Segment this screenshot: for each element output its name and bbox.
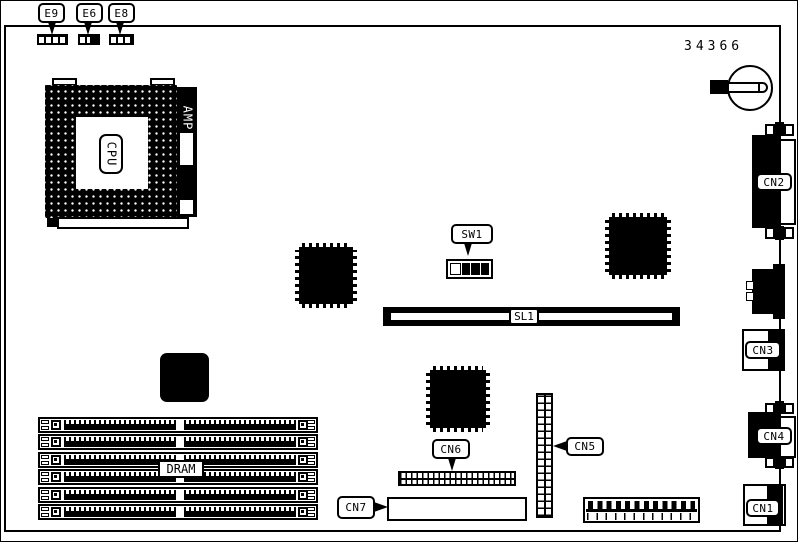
slot-key — [41, 478, 49, 482]
slot-key — [307, 496, 315, 500]
jumper-e6-arrow-icon — [84, 22, 92, 35]
battery-lead-icon — [727, 82, 768, 93]
pin — [125, 37, 130, 43]
slot-key — [307, 507, 315, 511]
jumper-e8-label: E8 — [108, 3, 135, 23]
slot-key — [307, 443, 315, 447]
header-pins — [588, 501, 695, 509]
sw1-text: SW1 — [461, 229, 482, 240]
dram-text: DRAM — [167, 463, 196, 475]
motherboard-diagram: 34366 E9 E6 E8 CPU AMP — [0, 0, 798, 542]
jumper-e8-pins — [109, 34, 134, 45]
amp-label-text: AMP — [181, 106, 193, 131]
cn3-label: CN3 — [745, 341, 781, 359]
jumper-e6-label: E6 — [76, 3, 103, 23]
chip-body — [430, 370, 486, 428]
battery-lead-base — [710, 80, 728, 94]
cn6-label: CN6 — [432, 439, 470, 459]
qfp-chip — [426, 366, 490, 432]
latch-icon — [51, 507, 61, 517]
qfp-chip — [605, 213, 671, 279]
cn5-arrow-icon — [553, 441, 567, 451]
amp-bracket-slot — [180, 200, 193, 214]
cn2-mount-post — [775, 122, 784, 136]
pin — [87, 37, 90, 43]
cn6-header — [398, 471, 516, 486]
cn1-text: CN1 — [752, 503, 773, 514]
slot-key — [41, 426, 49, 430]
header-cells — [587, 513, 696, 520]
din-connector-body — [752, 269, 781, 314]
pin — [111, 37, 116, 43]
pin-row — [64, 420, 176, 430]
pin-row — [184, 507, 296, 517]
cn2-mount-tab — [784, 227, 794, 239]
cn4-label: CN4 — [756, 427, 792, 445]
pin-row — [184, 437, 296, 447]
jumper-e9-pins — [37, 34, 68, 45]
simm-slot — [38, 417, 318, 433]
bottom-pin-header — [583, 497, 700, 523]
sl1-label: SL1 — [509, 308, 539, 325]
cn4-mount-tab — [765, 457, 775, 468]
pin-row — [64, 490, 176, 500]
cn4-mount-tab — [784, 457, 794, 468]
slot-key — [307, 472, 315, 476]
cpu-label: CPU — [99, 134, 123, 174]
chip-pins — [612, 275, 664, 279]
slot-key — [307, 437, 315, 441]
slot-key — [41, 420, 49, 424]
chip-body — [609, 217, 667, 275]
slot-key — [41, 513, 49, 517]
slot-key — [307, 420, 315, 424]
latch-icon — [51, 472, 61, 482]
pin-row — [64, 437, 176, 447]
jumper-e9-label: E9 — [38, 3, 65, 23]
dip-cell — [450, 263, 461, 275]
dip-cell — [462, 263, 471, 275]
cn2-mount-post — [775, 226, 784, 240]
slot-key — [41, 472, 49, 476]
slot-key — [307, 455, 315, 459]
sl1-text: SL1 — [514, 311, 534, 322]
dip-cell — [481, 263, 490, 275]
pin — [80, 37, 85, 43]
chip-body — [299, 247, 353, 304]
pin — [46, 37, 51, 43]
chip-pins — [433, 428, 483, 432]
amp-bracket-slot — [180, 133, 193, 165]
jumper-e8-text: E8 — [114, 8, 128, 19]
cn5-label: CN5 — [566, 437, 604, 456]
cn4-mount-tab — [784, 403, 794, 414]
cn2-mount-tab — [765, 227, 775, 239]
jumper-e6-pins — [78, 34, 100, 45]
sw1-label: SW1 — [451, 224, 493, 244]
slot-key — [307, 461, 315, 465]
cn2-label: CN2 — [756, 173, 792, 191]
flat-chip — [160, 353, 209, 402]
slot-key — [41, 507, 49, 511]
slot-key — [41, 437, 49, 441]
socket-lever-bar — [57, 217, 189, 229]
sw1-dip-switch — [446, 259, 493, 279]
chip-pins — [667, 220, 671, 272]
pin-row — [184, 420, 296, 430]
cn7-label: CN7 — [337, 496, 375, 519]
slot-key — [307, 426, 315, 430]
chip-pins — [302, 304, 350, 308]
slot-key — [41, 455, 49, 459]
pin-row — [64, 507, 176, 517]
part-number: 34366 — [684, 39, 743, 54]
latch-icon — [51, 437, 61, 447]
din-connector-pin — [746, 292, 754, 301]
socket-lever-hinge — [47, 218, 57, 227]
cn7-text: CN7 — [345, 502, 366, 513]
cn3-text: CN3 — [752, 345, 773, 356]
jumper-e9-arrow-icon — [48, 22, 56, 35]
jumper-e8-arrow-icon — [116, 22, 124, 35]
simm-slot — [38, 434, 318, 450]
dip-cell — [471, 263, 480, 275]
latch-icon — [51, 490, 61, 500]
cn5-text: CN5 — [574, 441, 595, 452]
slot-key — [307, 513, 315, 517]
pin — [60, 37, 65, 43]
jumper-e9-text: E9 — [44, 8, 58, 19]
cn7-arrow-icon — [374, 502, 388, 512]
cn4-mount-post — [775, 456, 784, 469]
chip-pins — [486, 373, 490, 425]
cn2-mount-tab — [784, 124, 794, 136]
cn6-text: CN6 — [440, 444, 461, 455]
cn4-text: CN4 — [763, 431, 784, 442]
cn1-label: CN1 — [746, 499, 780, 517]
cn5-header — [536, 393, 553, 518]
chip-pins — [353, 250, 357, 301]
amp-bracket: AMP — [177, 87, 197, 217]
jumper-e6-text: E6 — [82, 8, 96, 19]
header-bar — [586, 509, 697, 512]
cn2-text: CN2 — [763, 177, 784, 188]
latch-icon — [51, 420, 61, 430]
latch-icon — [51, 455, 61, 465]
dram-label: DRAM — [158, 460, 204, 478]
simm-slot — [38, 487, 318, 503]
din-connector-pin — [746, 281, 754, 290]
simm-slot — [38, 504, 318, 520]
pin — [39, 37, 44, 43]
cpu-label-text: CPU — [105, 142, 117, 167]
pin — [118, 37, 123, 43]
slot-key — [41, 496, 49, 500]
pin-row — [184, 490, 296, 500]
cn6-arrow-icon — [448, 458, 456, 471]
cn7-connector — [387, 497, 527, 521]
slot-key — [307, 490, 315, 494]
slot-key — [41, 490, 49, 494]
slot-key — [307, 478, 315, 482]
slot-key — [41, 443, 49, 447]
slot-key — [41, 461, 49, 465]
sw1-arrow-icon — [464, 243, 472, 256]
qfp-chip — [295, 243, 357, 308]
pin — [53, 37, 58, 43]
